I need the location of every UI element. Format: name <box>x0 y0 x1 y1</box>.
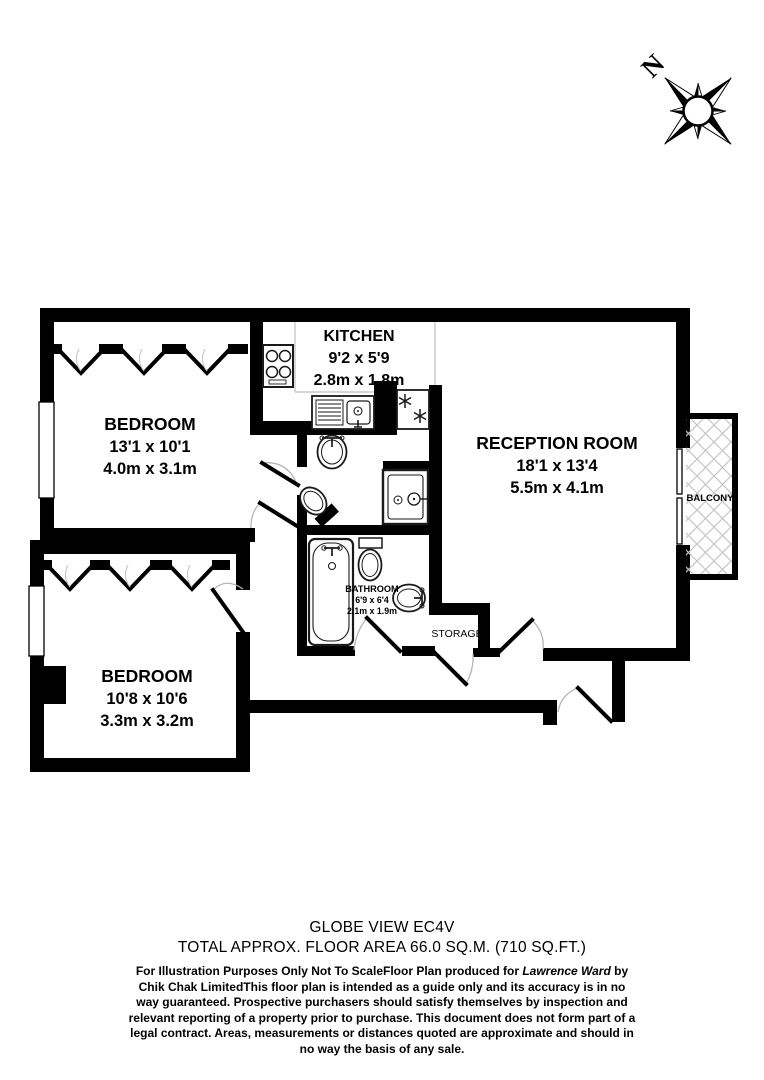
wall-segment <box>30 758 250 772</box>
room-imperial: 9'2 x 5'9 <box>329 350 390 367</box>
wall-segment <box>612 660 625 722</box>
wall-segment <box>383 461 429 470</box>
room-imperial: 10'8 x 10'6 <box>106 690 187 708</box>
room-metric: 2.1m x 1.9m <box>347 606 397 616</box>
producer-name: Lawrence Ward <box>522 964 610 978</box>
floorplan-page: N <box>0 0 764 1080</box>
balcony-wall <box>684 574 738 580</box>
room-imperial: 13'1 x 10'1 <box>109 438 190 456</box>
wall-segment <box>40 308 690 322</box>
shower-icon <box>383 470 428 524</box>
room-name: BEDROOM <box>104 414 195 434</box>
room-name: KITCHEN <box>323 328 394 345</box>
disclaimer-text: For Illustration Purposes Only Not To Sc… <box>136 964 522 978</box>
floorplan-canvas: N <box>0 0 764 918</box>
wall-pier <box>30 666 66 704</box>
basin-icon <box>318 436 347 469</box>
room-name: RECEPTION ROOM <box>476 433 637 453</box>
wardrobe-zigzag-icon <box>52 344 248 373</box>
compass-rose-icon: N <box>609 22 764 178</box>
toilet-icon <box>359 538 383 581</box>
footer: GLOBE VIEW EC4V TOTAL APPROX. FLOOR AREA… <box>0 918 764 1058</box>
wall-segment <box>543 648 680 661</box>
room-imperial: 6'9 x 6'4 <box>355 595 389 605</box>
door-storage <box>435 653 473 684</box>
room-metric: 4.0m x 3.1m <box>103 460 197 478</box>
wall-segment <box>40 528 255 542</box>
wall-segment <box>297 433 307 467</box>
wall-segment <box>473 648 500 657</box>
wall-segment <box>374 381 397 435</box>
wall-segment <box>429 385 442 613</box>
room-metric: 2.8m x 1.8m <box>314 372 405 389</box>
sink-icon <box>312 396 374 429</box>
wall-segment <box>402 646 435 656</box>
hob-icon <box>263 345 293 387</box>
window <box>39 402 54 498</box>
wall-segment <box>543 700 557 725</box>
door-bathroom <box>354 618 400 651</box>
door-bedroom2 <box>213 583 243 632</box>
room-name: BATHROOM <box>345 584 399 594</box>
door-wc <box>262 463 298 485</box>
room-metric: 5.5m x 4.1m <box>510 479 604 497</box>
door-entrance <box>558 688 611 721</box>
room-name: BEDROOM <box>101 666 192 686</box>
balcony: BALCONY <box>684 413 738 580</box>
wall-segment <box>250 322 263 430</box>
window <box>29 586 44 656</box>
door-bedroom1 <box>251 503 297 528</box>
room-name: STORAGE <box>431 628 482 640</box>
wall-segment <box>236 540 250 590</box>
balcony-label: BALCONY <box>687 493 735 504</box>
wall-segment <box>478 603 490 649</box>
door-reception <box>500 620 543 651</box>
disclaimer: For Illustration Purposes Only Not To Sc… <box>126 964 638 1058</box>
freezer-icon <box>397 390 429 429</box>
wall-segment <box>236 632 250 772</box>
wall-segment <box>30 540 250 554</box>
balcony-wall <box>684 413 738 419</box>
property-title: GLOBE VIEW EC4V <box>0 918 764 938</box>
wardrobe-zigzag-icon <box>44 560 230 589</box>
room-imperial: 18'1 x 13'4 <box>516 457 598 475</box>
wall-segment <box>248 700 543 713</box>
floor-area: TOTAL APPROX. FLOOR AREA 66.0 SQ.M. (710… <box>0 938 764 958</box>
wall-segment <box>297 535 307 656</box>
wall-segment <box>297 646 355 656</box>
wall-segment <box>297 525 442 535</box>
room-metric: 3.3m x 3.2m <box>100 712 194 730</box>
